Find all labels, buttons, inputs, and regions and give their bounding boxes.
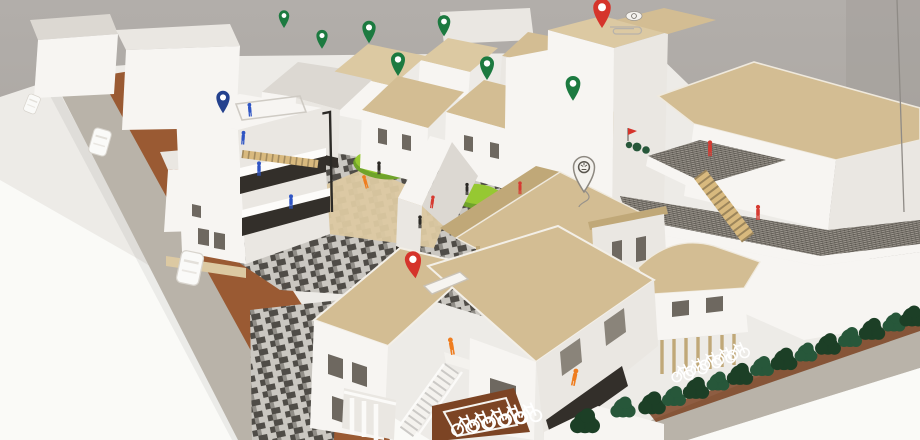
model-photo: Architectural scale model of an urban bl… [0,0,920,440]
model-photo-canvas [0,0,920,440]
logo-pin-disc [626,12,642,21]
